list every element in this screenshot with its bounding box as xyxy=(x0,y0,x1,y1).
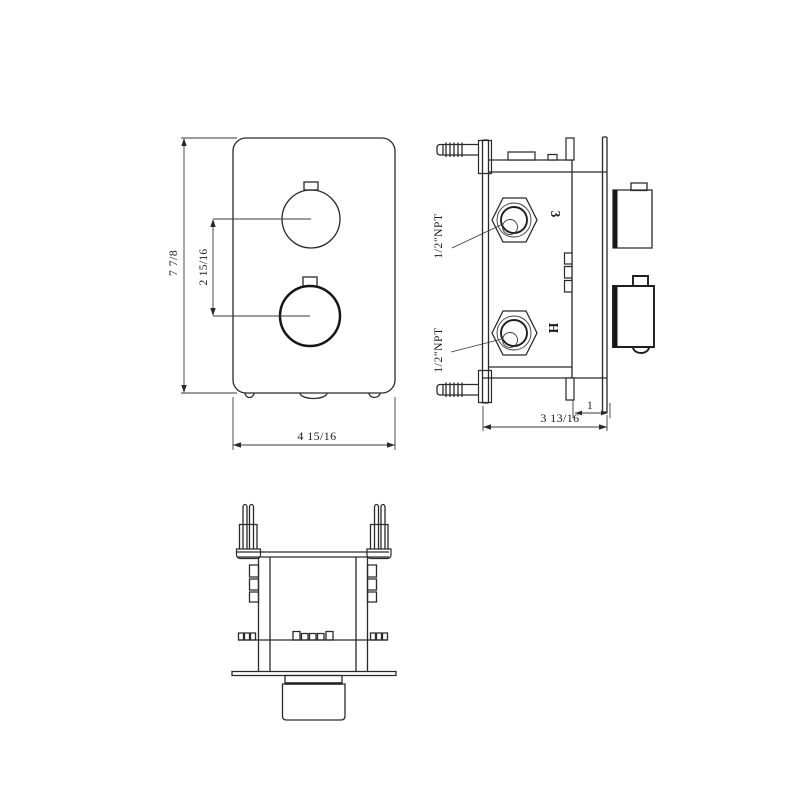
npt-label-bottom: 1/2"NPT xyxy=(433,327,445,372)
screw-post-left xyxy=(237,505,261,559)
rail-slots xyxy=(250,565,377,602)
hex-fitting-top xyxy=(492,198,537,242)
knob-end-view xyxy=(283,676,346,721)
body-clips xyxy=(508,138,574,400)
hex-top-port-circle xyxy=(501,207,527,233)
hex-top-outer-circle xyxy=(497,203,531,237)
mounting-screw-top xyxy=(437,143,480,158)
side-view: 1/2"NPT 1/2"NPT 3 H 1 3 13/16 xyxy=(433,137,654,431)
hex-bottom-outer-circle xyxy=(497,316,531,350)
port-mark-bottom: H xyxy=(546,323,561,334)
knob-top-profile xyxy=(613,183,652,248)
upper-knob-tab xyxy=(304,182,318,190)
npt-leader-lines xyxy=(451,224,503,352)
knob-bottom-outline xyxy=(613,276,654,353)
left-flange xyxy=(483,140,489,403)
dim-knob-spacing-label: 2 15/16 xyxy=(198,249,210,286)
knob-bottom-profile xyxy=(613,276,654,353)
valve-body-lines xyxy=(483,137,608,412)
hex-top-outline xyxy=(492,198,537,242)
dim-depth-label: 3 13/16 xyxy=(540,411,579,425)
knob-top-outline xyxy=(613,183,652,248)
hex-bottom-outline xyxy=(492,311,537,355)
dim-height-label: 7 7/8 xyxy=(166,250,180,276)
screw-top-lines xyxy=(437,143,480,158)
port-mark-top: 3 xyxy=(548,211,563,218)
drawing-page: 7 7/8 2 15/16 4 15/16 xyxy=(0,0,800,800)
dim-width-label: 4 15/16 xyxy=(297,429,336,443)
hex-fitting-bottom xyxy=(492,311,537,355)
dim-plate-gap-label: 1 xyxy=(587,400,593,412)
front-view: 7 7/8 2 15/16 4 15/16 xyxy=(166,138,395,450)
screw-post-right-lines xyxy=(371,505,389,553)
hex-bottom-port-circle xyxy=(501,320,527,346)
screw-post-right xyxy=(367,505,391,559)
knob-end-body xyxy=(283,684,346,720)
technical-drawing-svg: 7 7/8 2 15/16 4 15/16 xyxy=(0,0,800,800)
screw-bottom-lines xyxy=(437,383,480,398)
lower-knob-tab xyxy=(303,277,317,286)
faceplate-outline xyxy=(233,138,395,393)
faceplate-bottom-bumps xyxy=(245,393,380,399)
mounting-screw-bottom xyxy=(437,383,480,398)
screw-brackets xyxy=(479,141,492,403)
screw-post-left-lines xyxy=(240,505,258,553)
mid-tabs xyxy=(239,632,388,641)
knob-center-lines xyxy=(213,219,311,316)
box-frame-lines xyxy=(232,552,396,676)
npt-label-top: 1/2"NPT xyxy=(433,213,445,258)
bottom-view xyxy=(232,505,396,721)
